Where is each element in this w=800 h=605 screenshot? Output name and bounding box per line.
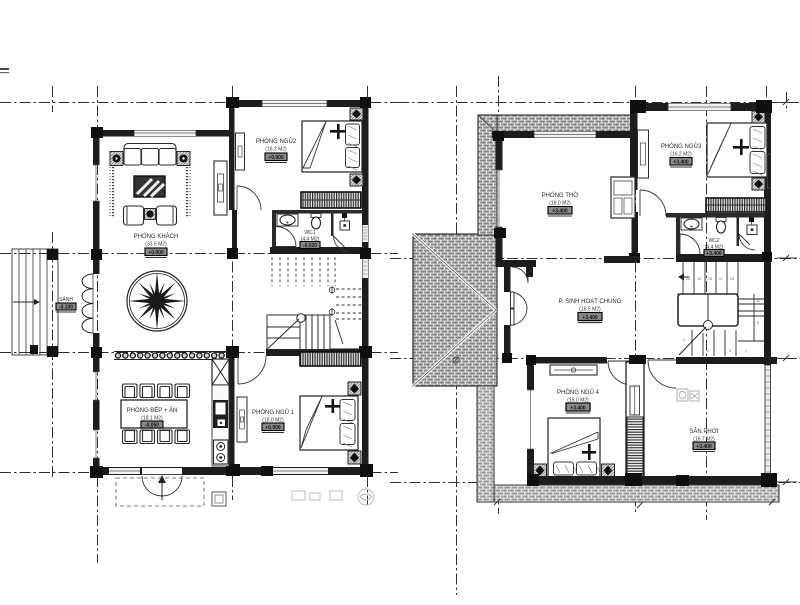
svg-text:13: 13 xyxy=(730,277,734,281)
svg-text:17: 17 xyxy=(719,277,723,281)
svg-text:+3.400: +3.400 xyxy=(552,209,568,215)
svg-text:PHÒNG NGỦ3: PHÒNG NGỦ3 xyxy=(661,143,702,150)
svg-text:+3.400: +3.400 xyxy=(582,315,598,321)
svg-text:+3.400: +3.400 xyxy=(696,444,712,450)
svg-text:1: 1 xyxy=(683,338,685,342)
svg-text:11: 11 xyxy=(756,299,760,303)
svg-text:+0.000: +0.000 xyxy=(268,155,284,161)
svg-text:PHÒNG THỜ: PHÒNG THỜ xyxy=(542,192,579,199)
svg-text:19: 19 xyxy=(697,277,701,281)
svg-text:(16.5 M2): (16.5 M2) xyxy=(579,307,601,313)
svg-text:(33.5 M2): (33.5 M2) xyxy=(145,242,167,248)
svg-text:20: 20 xyxy=(686,277,690,281)
svg-text:-0.050: -0.050 xyxy=(145,423,159,429)
svg-text:+3.400: +3.400 xyxy=(570,406,586,412)
svg-text:(16.2 M2): (16.2 M2) xyxy=(265,147,287,153)
svg-text:WC1: WC1 xyxy=(304,230,315,236)
svg-text:SÂN PHƠI: SÂN PHƠI xyxy=(689,428,718,435)
svg-text:P. SINH HOẠT CHUNG: P. SINH HOẠT CHUNG xyxy=(559,299,622,305)
svg-text:-0.020: -0.020 xyxy=(303,243,317,249)
svg-text:+3.400: +3.400 xyxy=(706,251,722,257)
svg-text:+3.400: +3.400 xyxy=(673,160,689,166)
svg-text:9: 9 xyxy=(757,321,759,325)
svg-text:PHÒNG NGỦ 4: PHÒNG NGỦ 4 xyxy=(557,389,600,396)
svg-text:PHÒNG KHÁCH: PHÒNG KHÁCH xyxy=(134,233,179,240)
svg-text:(18.0 M2): (18.0 M2) xyxy=(549,201,571,207)
svg-text:-0.100: -0.100 xyxy=(59,305,73,311)
svg-text:PHÒNG NGỦ 1: PHÒNG NGỦ 1 xyxy=(252,409,295,416)
svg-text:PHÒNG NGỦ2: PHÒNG NGỦ2 xyxy=(256,138,297,145)
svg-text:+0.000: +0.000 xyxy=(265,425,281,431)
svg-text:18: 18 xyxy=(708,277,712,281)
svg-text:+0.000: +0.000 xyxy=(148,250,164,256)
svg-text:SẢNH: SẢNH xyxy=(59,296,73,303)
svg-text:2: 2 xyxy=(707,349,709,353)
svg-text:(16.2 M2): (16.2 M2) xyxy=(670,152,692,158)
svg-text:3: 3 xyxy=(729,349,731,353)
svg-text:WC2: WC2 xyxy=(708,238,719,244)
svg-text:PHÒNG BẾP + ĂN: PHÒNG BẾP + ĂN xyxy=(127,407,178,414)
svg-text:7: 7 xyxy=(745,350,747,354)
